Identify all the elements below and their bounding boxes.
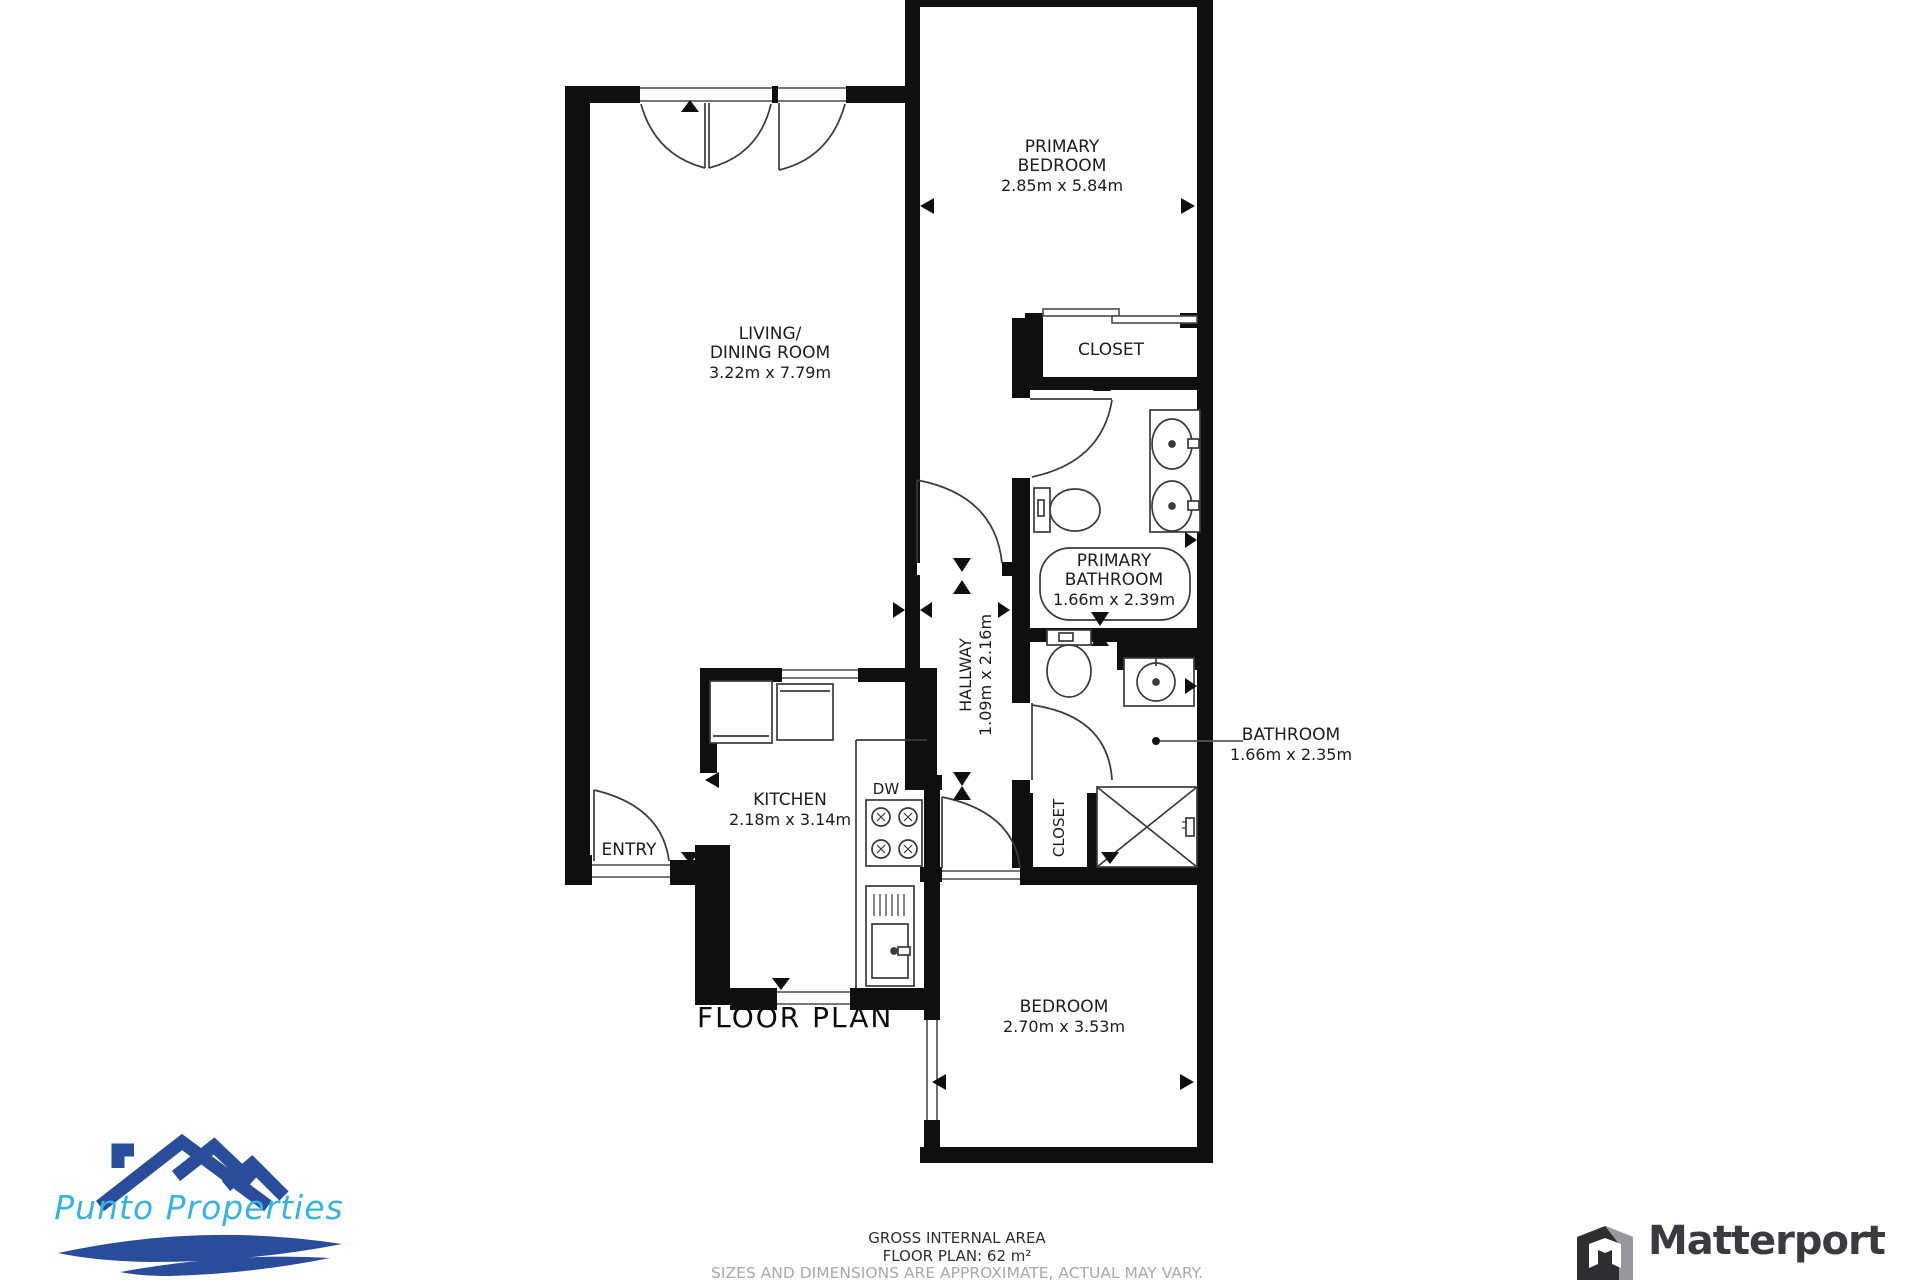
doorway-entry [592,861,670,882]
room-label-bathroom: BATHROOM 1.66m x 2.35m [1230,726,1352,764]
door-arc-french-left [641,103,705,168]
stove-icon [866,800,922,866]
door-arc-bathroom [1032,703,1112,780]
fridge-icon [866,886,914,986]
floor-plan-page: PRIMARY BEDROOM 2.85m x 5.84m LIVING/ DI… [0,0,1920,1280]
direction-marker [953,786,971,800]
washer-icon [710,681,772,743]
footer-floor-plan-area: FLOOR PLAN: 62 m² [883,1247,1032,1265]
door-arc-french-right [709,103,771,168]
fixtures [710,410,1200,988]
room-label-bedroom: BEDROOM 2.70m x 3.53m [1003,998,1125,1036]
punto-logo-wave [58,1235,342,1276]
kitchen-hatch [782,668,858,680]
matterport-logo-icon [1577,1226,1633,1280]
punto-properties-logo-text: Punto Properties [44,1198,354,1217]
direction-marker [998,602,1010,618]
door-arc-living-hallway [917,480,1002,563]
vanity-double-sink-icon [1150,410,1200,532]
window-bedroom [924,1020,940,1120]
direction-marker [953,580,971,594]
direction-marker [1185,532,1197,548]
sliding-door-closet [1043,309,1197,323]
toilet-primary-icon [1034,488,1100,532]
door-arc-bedroom [942,797,1020,868]
doorway-bathroom [1012,703,1030,780]
room-label-primary-bedroom: PRIMARY BEDROOM 2.85m x 5.84m [1001,138,1123,195]
dryer-icon [777,684,833,740]
direction-marker [893,602,905,618]
door-arc-primary-bathroom [1030,399,1112,477]
window-french-doors [640,87,846,102]
room-label-kitchen: KITCHEN 2.18m x 3.14m [729,791,851,829]
matterport-logo-text: Matterport [1648,1232,1885,1251]
room-label-primary-closet: CLOSET [1078,341,1144,360]
footer-gross-area: GROSS INTERNAL AREA [868,1229,1045,1247]
door-swings [594,103,1112,868]
page-title: FLOOR PLAN [697,1008,893,1027]
label-dishwasher: DW [873,780,899,799]
footer-disclaimer: SIZES AND DIMENSIONS ARE APPROXIMATE, AC… [711,1264,1203,1280]
toilet-icon [1047,630,1091,697]
direction-marker [1181,198,1195,214]
room-label-entry: ENTRY [602,841,657,860]
direction-marker [920,602,932,618]
door-arc-balcony [779,103,845,170]
room-label-hall-closet: CLOSET [1049,799,1069,857]
direction-marker [920,198,934,214]
room-label-primary-bathroom: PRIMARY BATHROOM 1.66m x 2.39m [1053,552,1175,609]
direction-marker [953,772,971,786]
room-label-living-dining: LIVING/ DINING ROOM 3.22m x 7.79m [709,325,831,382]
doorway-primary-bathroom [1012,398,1030,478]
direction-marker [1180,1074,1194,1090]
sink-icon [1124,658,1194,706]
room-label-hallway: HALLWAY 1.09m x 2.16m [956,614,996,736]
doorway-bedroom [942,868,1020,882]
